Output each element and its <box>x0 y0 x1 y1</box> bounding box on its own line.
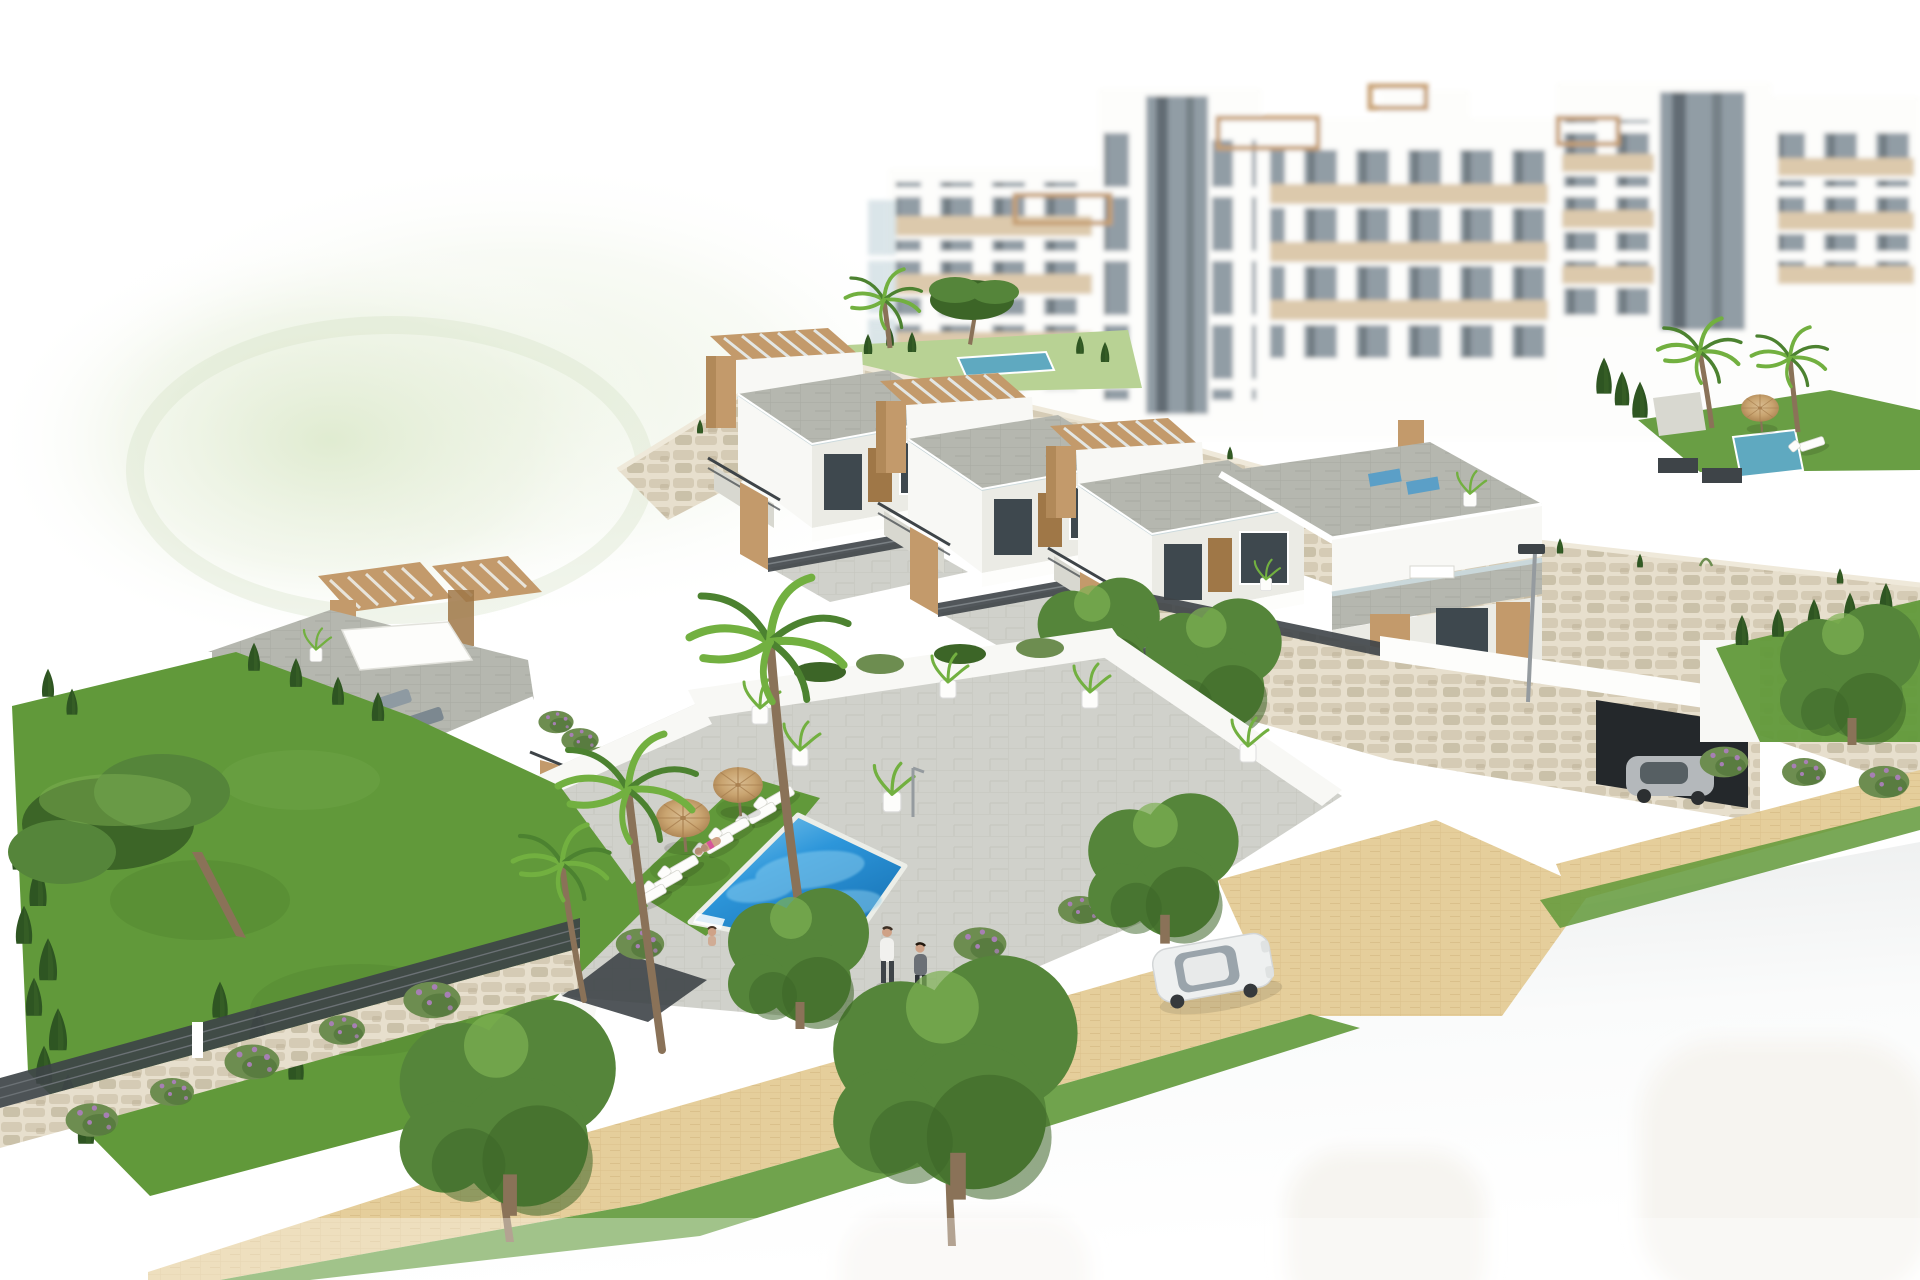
leafy-tree <box>1780 604 1920 745</box>
flowering-bush <box>1700 747 1748 778</box>
leafy-tree <box>1088 793 1238 943</box>
planter-box <box>1658 458 1698 473</box>
bottom-fade <box>0 1218 1920 1280</box>
leafy-tree <box>728 888 869 1029</box>
garden-stairs <box>1653 392 1706 436</box>
bench <box>1410 566 1454 578</box>
render-canvas <box>0 0 1920 1280</box>
flowering-bush <box>1859 766 1910 798</box>
planter-box <box>1702 468 1742 483</box>
hedge-bush <box>538 711 573 733</box>
apartment-slab <box>1262 90 1556 400</box>
gate-post <box>192 1022 203 1058</box>
flowering-bush <box>1782 758 1826 786</box>
apartment-tower <box>1772 96 1920 332</box>
architectural-render <box>0 0 1920 1280</box>
plunge-pool <box>1733 430 1803 477</box>
